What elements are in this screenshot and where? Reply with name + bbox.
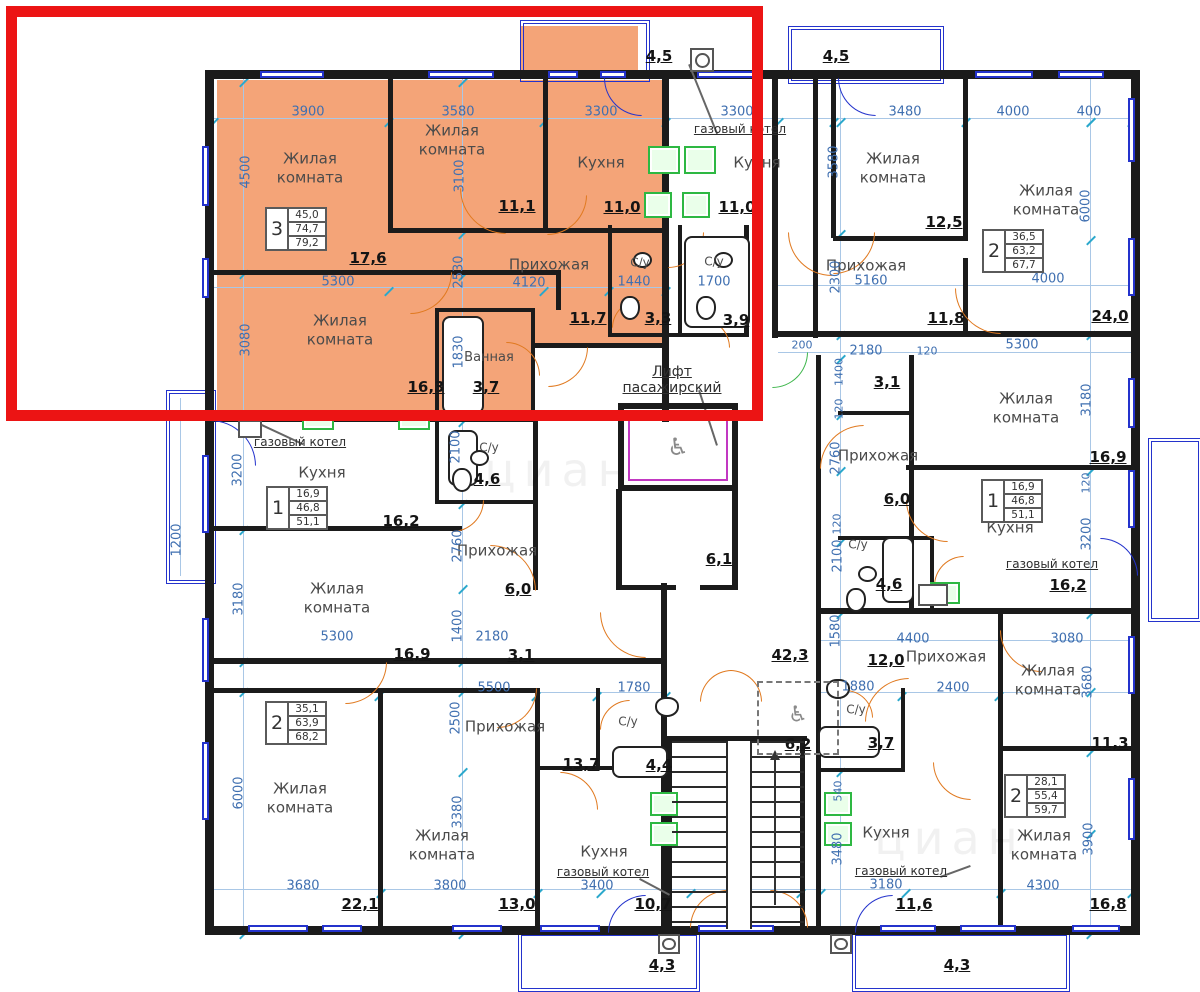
window [1128, 778, 1135, 840]
apartment-stamp: 116,946,851,1 [981, 479, 1043, 523]
door-arc [600, 612, 646, 658]
dim-label: 3080 [1050, 632, 1083, 647]
stamp-area-value: 28,1 [1028, 776, 1064, 790]
stamp-values: 28,155,459,7 [1028, 776, 1064, 816]
note-label: газовый котел [254, 435, 346, 449]
room-label: С/у [618, 715, 638, 730]
window [202, 455, 209, 533]
window [202, 742, 209, 820]
dim-label: 2760 [829, 441, 844, 474]
room-label: Прихожая [838, 447, 918, 466]
room-label: Кухня [580, 843, 627, 862]
stairs-stringer [726, 741, 752, 929]
highlight-frame [6, 6, 763, 421]
stamp-area-value: 46,8 [290, 502, 326, 516]
window [1128, 98, 1135, 162]
wall [818, 608, 1131, 614]
wall [435, 418, 439, 502]
apartment-stamp: 116,946,851,1 [266, 486, 328, 530]
dim-label: 540 [832, 781, 845, 802]
stamp-values: 16,946,851,1 [1005, 481, 1041, 521]
room-label: Жилая комната [304, 579, 370, 617]
dim-label: 1200 [170, 523, 185, 556]
window [322, 925, 362, 932]
door-arc [933, 762, 971, 800]
wall [616, 585, 676, 590]
wall [816, 768, 905, 772]
dim-label: 5300 [320, 630, 353, 645]
area-label: 16,2 [1049, 576, 1086, 594]
stamp-area-value: 68,2 [289, 731, 325, 743]
dim-label: 4300 [1026, 879, 1059, 894]
stamp-area-value: 63,2 [1006, 245, 1042, 259]
room-label: Прихожая [906, 648, 986, 667]
area-label: 16,9 [393, 645, 430, 663]
stamp-room-count: 1 [983, 481, 1005, 521]
area-label: 6,1 [706, 550, 733, 568]
room-label: Жилая комната [993, 389, 1059, 427]
wall [772, 78, 778, 338]
dim-label: 2180 [475, 630, 508, 645]
dim-label: 3180 [232, 582, 247, 615]
stamp-room-count: 2 [984, 231, 1006, 271]
dim-label: 2300 [829, 260, 844, 293]
dim-label: 3680 [286, 879, 319, 894]
dim-label: 3480 [888, 105, 921, 120]
dimension-line [778, 352, 1131, 353]
apartment-stamp: 228,155,459,7 [1004, 774, 1066, 818]
dim-label: 5500 [477, 681, 510, 696]
dim-label: 4000 [996, 105, 1029, 120]
stairs [672, 741, 804, 929]
area-label: 11,8 [927, 309, 964, 327]
dim-label: 6000 [1079, 189, 1094, 222]
area-label: 10,7 [634, 895, 671, 913]
dim-label: 3200 [1080, 517, 1095, 550]
wall [732, 489, 738, 589]
area-label: 16,8 [1089, 895, 1126, 913]
watermark: циан [874, 811, 1025, 865]
door-arc [700, 670, 732, 702]
toilet-fixture [846, 588, 866, 612]
dim-label: 2500 [449, 701, 464, 734]
sink-fixture [858, 566, 877, 582]
apartment-stamp: 235,163,968,2 [265, 701, 327, 745]
area-label: 4,3 [649, 956, 676, 974]
dim-label: 120 [831, 514, 844, 535]
window [1128, 238, 1135, 296]
door-arc [560, 772, 598, 810]
area-label: 4,4 [646, 756, 673, 774]
room-label: Кухня [298, 464, 345, 483]
dim-label: 2180 [849, 344, 882, 359]
dim-label: 2760 [451, 529, 466, 562]
stamp-values: 16,946,851,1 [290, 488, 326, 528]
stamp-area-value: 46,8 [1005, 495, 1041, 509]
dim-label: 1400 [451, 609, 466, 642]
area-label: 3,1 [508, 646, 535, 664]
area-label: 22,1 [341, 895, 378, 913]
area-label: 11,6 [895, 895, 932, 913]
room-label: С/у [848, 538, 868, 553]
window [1072, 925, 1120, 932]
boiler-flue-icon [830, 934, 852, 954]
wall [435, 500, 537, 504]
dimension-tick [1086, 236, 1096, 246]
room-label: С/у [846, 703, 866, 718]
area-label: 12,5 [925, 213, 962, 231]
stamp-area-value: 59,7 [1028, 804, 1064, 816]
stamp-area-value: 36,5 [1006, 231, 1042, 245]
accessibility-platform: ♿ [757, 681, 839, 755]
stamp-values: 35,163,968,2 [289, 703, 325, 743]
stamp-values: 36,563,267,7 [1006, 231, 1042, 271]
dimension-tick [458, 585, 468, 595]
dim-label: 3800 [433, 879, 466, 894]
room-label: Прихожая [465, 718, 545, 737]
stamp-area-value: 55,4 [1028, 790, 1064, 804]
area-label: 4,5 [823, 47, 850, 65]
area-label: 6,0 [505, 580, 532, 598]
wall [616, 489, 622, 589]
stamp-room-count: 1 [268, 488, 290, 528]
dim-label: 3400 [580, 879, 613, 894]
wall [963, 78, 968, 241]
note-label: газовый котел [1006, 557, 1098, 571]
room-label: Жилая комната [1013, 181, 1079, 219]
toilet-fixture [655, 697, 679, 717]
dim-label: 4000 [1031, 272, 1064, 287]
window [1128, 470, 1135, 528]
area-label: 42,3 [771, 646, 808, 664]
dim-label: 1780 [617, 681, 650, 696]
stamp-room-count: 2 [1006, 776, 1028, 816]
dim-label: 5160 [854, 274, 887, 289]
wall [998, 613, 1003, 930]
area-label: 4,3 [944, 956, 971, 974]
dim-label: 120 [1080, 473, 1093, 494]
dim-label: 400 [1077, 105, 1102, 120]
note-label: газовый котел [855, 864, 947, 878]
area-label: 3,1 [874, 373, 901, 391]
window [540, 925, 600, 932]
door-arc [855, 895, 893, 933]
area-label: 3,7 [868, 734, 895, 752]
stamp-area-value: 67,7 [1006, 259, 1042, 271]
toilet-fixture [452, 468, 472, 492]
wall [213, 526, 462, 531]
wall [700, 585, 738, 590]
stamp-room-count: 2 [267, 703, 289, 743]
note-label: газовый котел [557, 865, 649, 879]
room-label: Жилая комната [1015, 661, 1081, 699]
area-label: 11,3 [1091, 734, 1128, 752]
dim-label: 3900 [1082, 822, 1097, 855]
door-arc [452, 500, 484, 532]
stamp-area-value: 16,9 [1005, 481, 1041, 495]
window [960, 925, 1016, 932]
stamp-area-value: 35,1 [289, 703, 325, 717]
area-label: 16,2 [382, 512, 419, 530]
area-label: 24,0 [1091, 307, 1128, 325]
dim-label: 6000 [232, 776, 247, 809]
balcony [1148, 438, 1200, 622]
area-label: 6,0 [884, 490, 911, 508]
dim-label: 3380 [451, 795, 466, 828]
dim-label: 2100 [831, 539, 846, 572]
dim-label: 1880 [841, 680, 874, 695]
wall [778, 331, 1131, 337]
door-arc [838, 78, 876, 116]
stamp-area-value: 16,9 [290, 488, 326, 502]
door-arc [772, 352, 808, 388]
area-label: 12,0 [867, 651, 904, 669]
wall [838, 411, 912, 415]
dim-label: 5300 [1005, 338, 1038, 353]
dim-label: 3180 [869, 878, 902, 893]
wheelchair-icon: ♿ [667, 433, 689, 461]
dim-label: 2100 [449, 430, 464, 463]
area-label: 13,0 [498, 895, 535, 913]
area-label: 16,9 [1089, 448, 1126, 466]
room-label: Жилая комната [409, 826, 475, 864]
wall [813, 78, 818, 338]
window [975, 71, 1033, 78]
wall [378, 688, 383, 930]
wall [816, 355, 821, 930]
dimension-tick [458, 768, 468, 778]
window [248, 925, 308, 932]
dim-label: 1400 [833, 358, 846, 386]
window [1128, 636, 1135, 694]
dim-label: 3580 [827, 145, 842, 178]
dim-label: 3680 [1081, 665, 1096, 698]
dimension-line [820, 640, 1131, 641]
window [1058, 71, 1104, 78]
dim-label: 1580 [829, 614, 844, 647]
bathtub-fixture [882, 537, 914, 603]
wall [213, 658, 665, 664]
dim-label: 3200 [231, 453, 246, 486]
apartment-stamp: 236,563,267,7 [982, 229, 1044, 273]
watermark: циан [484, 443, 635, 497]
window [1128, 378, 1135, 428]
room-label: Жилая комната [267, 779, 333, 817]
dim-label: 120 [833, 399, 846, 420]
window [452, 925, 502, 932]
dim-label: 200 [792, 339, 813, 352]
boiler-box [918, 584, 948, 606]
window [202, 618, 209, 682]
dim-label: 3180 [1080, 383, 1095, 416]
dim-label: 2400 [936, 681, 969, 696]
area-label: 13,7 [562, 755, 599, 773]
dim-label: 4400 [896, 632, 929, 647]
stamp-area-value: 63,9 [289, 717, 325, 731]
room-label: Прихожая [457, 542, 537, 561]
boiler-flue-icon [658, 934, 680, 954]
stairs-direction-arrow [774, 755, 776, 905]
area-label: 4,6 [876, 575, 903, 593]
room-label: Жилая комната [860, 149, 926, 187]
stamp-area-value: 51,1 [290, 516, 326, 528]
dim-label: 3480 [831, 832, 846, 865]
dim-label: 120 [917, 345, 938, 358]
wheelchair-icon: ♿ [788, 702, 808, 727]
stamp-area-value: 51,1 [1005, 509, 1041, 521]
